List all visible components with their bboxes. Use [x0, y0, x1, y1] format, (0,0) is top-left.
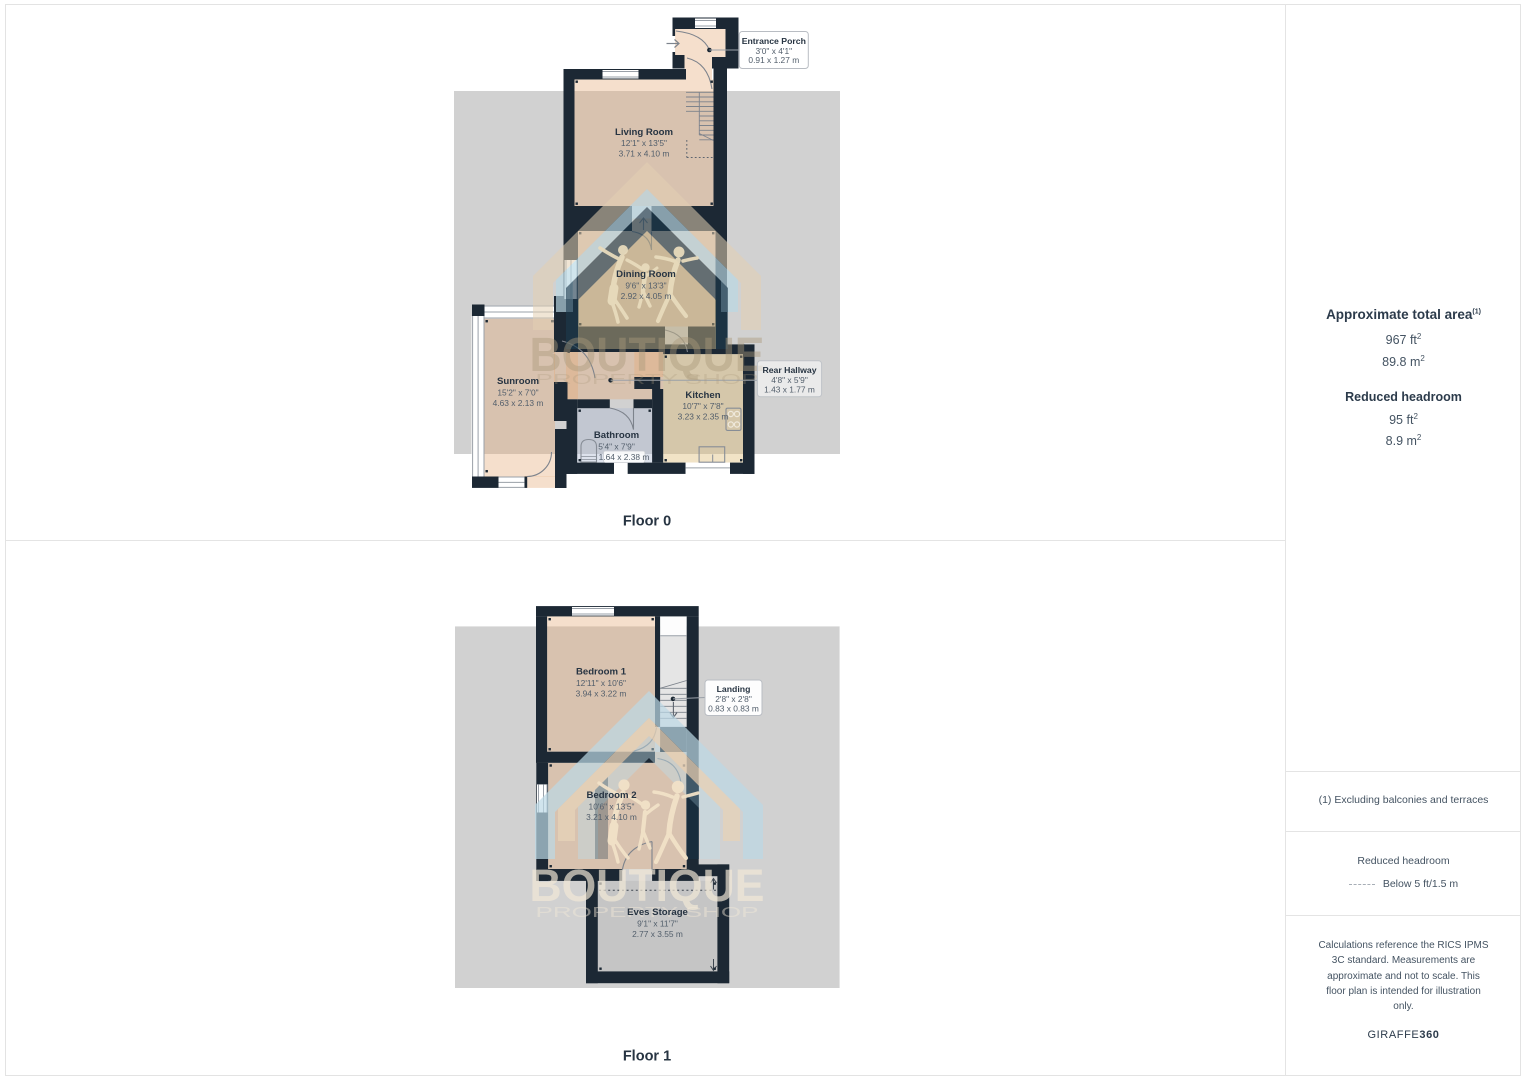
svg-text:Bathroom: Bathroom: [594, 430, 639, 441]
svg-text:9'6" x 13'3": 9'6" x 13'3": [625, 281, 666, 291]
svg-text:Kitchen: Kitchen: [685, 390, 720, 401]
svg-text:Floor 1: Floor 1: [623, 1049, 671, 1065]
svg-text:Bedroom 1: Bedroom 1: [576, 667, 627, 678]
svg-text:Eves Storage: Eves Storage: [627, 907, 688, 918]
svg-text:Bedroom 2: Bedroom 2: [586, 790, 636, 801]
svg-text:Landing: Landing: [717, 684, 751, 694]
svg-text:4.63 x 2.13 m: 4.63 x 2.13 m: [493, 398, 544, 408]
svg-text:PROPERTY SHOP: PROPERTY SHOP: [536, 371, 759, 388]
svg-text:Entrance Porch: Entrance Porch: [742, 36, 806, 46]
svg-text:15'2" x 7'0": 15'2" x 7'0": [497, 388, 538, 398]
svg-text:0.91 x 1.27 m: 0.91 x 1.27 m: [748, 55, 799, 65]
svg-text:12'1" x 13'5": 12'1" x 13'5": [621, 138, 667, 148]
svg-text:Dining Room: Dining Room: [616, 269, 676, 280]
svg-text:12'11" x 10'6": 12'11" x 10'6": [576, 678, 626, 688]
svg-text:3.94 x 3.22 m: 3.94 x 3.22 m: [576, 689, 627, 699]
svg-text:Rear Hallway: Rear Hallway: [762, 365, 816, 375]
svg-text:5'4" x 7'9": 5'4" x 7'9": [598, 442, 635, 452]
svg-text:2.77 x 3.55 m: 2.77 x 3.55 m: [632, 929, 683, 939]
svg-text:Living Room: Living Room: [615, 127, 673, 138]
svg-text:Floor 0: Floor 0: [623, 514, 671, 530]
svg-text:0.83 x 0.83 m: 0.83 x 0.83 m: [708, 704, 759, 714]
svg-text:9'1" x 11'7": 9'1" x 11'7": [637, 919, 678, 929]
svg-text:10'6" x 13'5": 10'6" x 13'5": [589, 802, 635, 812]
svg-text:2.92 x 4.05 m: 2.92 x 4.05 m: [621, 291, 672, 301]
svg-text:1.43 x 1.77 m: 1.43 x 1.77 m: [764, 384, 815, 394]
svg-text:10'7" x 7'8": 10'7" x 7'8": [682, 401, 723, 411]
svg-text:1.64 x 2.38 m: 1.64 x 2.38 m: [599, 452, 650, 462]
svg-text:3.71 x 4.10 m: 3.71 x 4.10 m: [619, 149, 670, 159]
svg-text:3.21 x 4.10 m: 3.21 x 4.10 m: [586, 812, 637, 822]
svg-text:Sunroom: Sunroom: [497, 376, 539, 387]
svg-text:2'8" x 2'8": 2'8" x 2'8": [715, 694, 752, 704]
svg-text:4'8" x 5'9": 4'8" x 5'9": [771, 375, 808, 385]
svg-text:3.23 x 2.35 m: 3.23 x 2.35 m: [678, 412, 729, 422]
